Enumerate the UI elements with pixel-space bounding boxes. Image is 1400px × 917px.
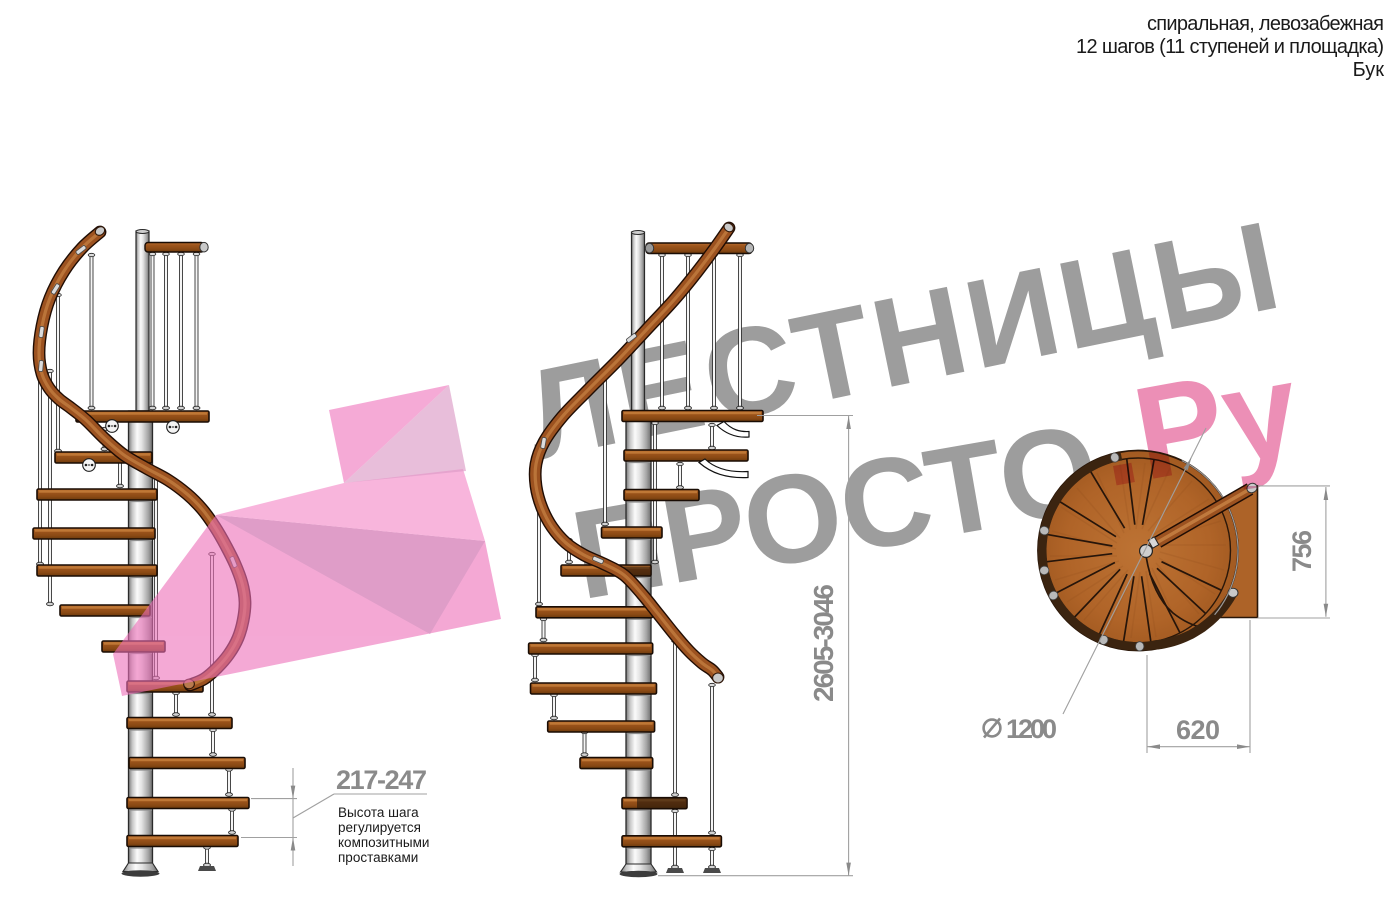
svg-text:проставками: проставками (338, 850, 418, 865)
svg-text:217-247: 217-247 (336, 765, 427, 795)
svg-text:Бук: Бук (1353, 59, 1385, 81)
svg-text:спиральная, левозабежная: спиральная, левозабежная (1147, 13, 1384, 35)
svg-text:756: 756 (1287, 530, 1317, 572)
svg-text:620: 620 (1176, 715, 1220, 745)
svg-text:регулируется: регулируется (338, 820, 421, 835)
svg-text:композитными: композитными (338, 835, 429, 850)
svg-text:2605-3046: 2605-3046 (808, 584, 839, 702)
svg-text:1200: 1200 (1006, 714, 1057, 744)
svg-text:Высота шага: Высота шага (338, 805, 419, 820)
svg-text:12 шагов (11 ступеней и площад: 12 шагов (11 ступеней и площадка) (1076, 36, 1384, 58)
